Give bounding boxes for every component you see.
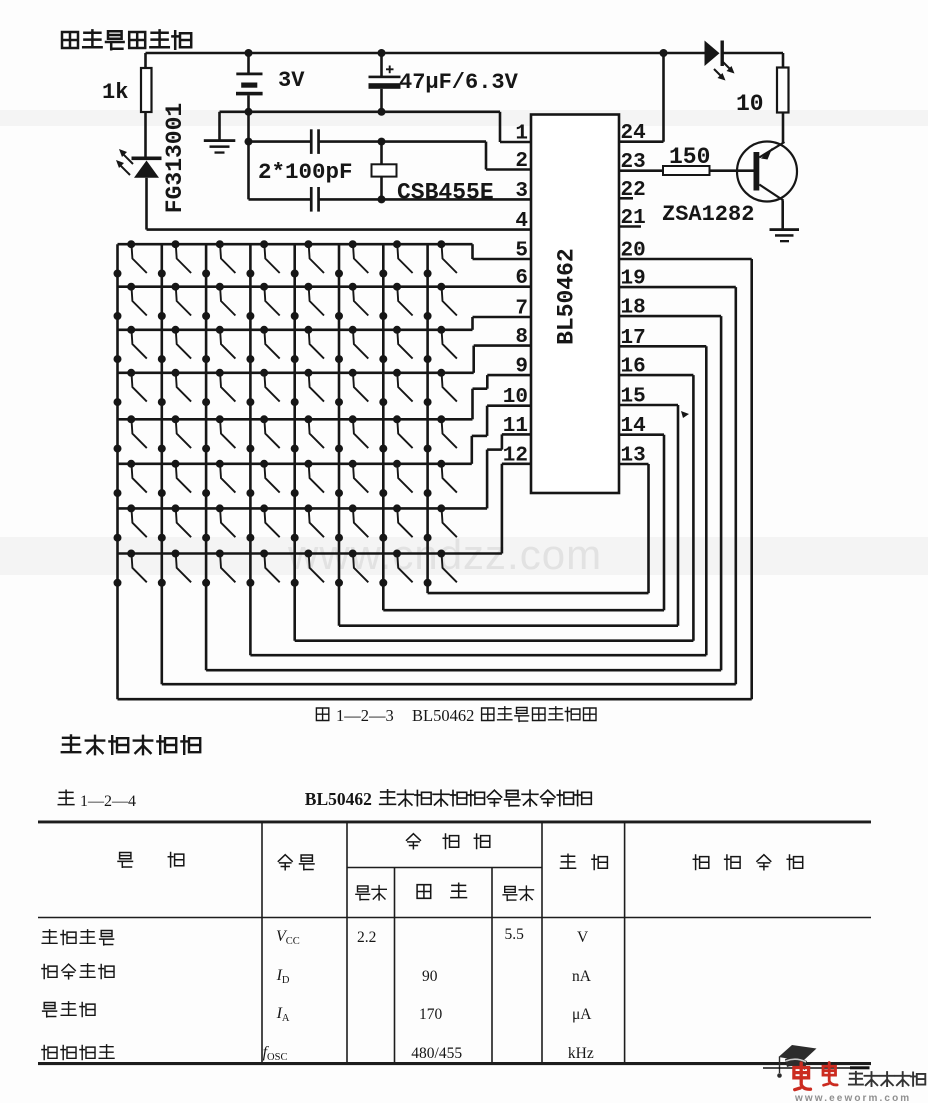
svg-text:150: 150	[669, 144, 710, 170]
svg-text:2.2: 2.2	[357, 929, 376, 946]
svg-text:480/455: 480/455	[411, 1045, 462, 1062]
svg-text:kHz: kHz	[568, 1045, 594, 1062]
svg-text:CSB455E: CSB455E	[397, 180, 494, 206]
svg-text:1—2—4: 1—2—4	[80, 793, 136, 810]
svg-text:nA: nA	[572, 968, 592, 985]
svg-text:2*100pF: 2*100pF	[258, 159, 353, 185]
svg-text:47μF/6.3V: 47μF/6.3V	[399, 70, 519, 95]
svg-text:170: 170	[419, 1006, 443, 1023]
svg-text:2: 2	[515, 150, 528, 173]
svg-text:BL50462: BL50462	[554, 248, 580, 345]
svg-text:μA: μA	[572, 1006, 592, 1023]
svg-text:www.eeworm.com: www.eeworm.com	[794, 1093, 911, 1103]
svg-text:FG313001: FG313001	[162, 103, 188, 213]
svg-text:1: 1	[515, 123, 528, 146]
svg-text:10: 10	[736, 91, 764, 117]
svg-text:V: V	[577, 929, 589, 946]
svg-text:90: 90	[422, 968, 438, 985]
svg-text:BL50462: BL50462	[412, 706, 474, 725]
svg-text:3: 3	[515, 180, 528, 203]
svg-text:1—2—3: 1—2—3	[336, 706, 394, 725]
svg-text:BL50462: BL50462	[305, 789, 372, 809]
svg-text:3V: 3V	[278, 68, 305, 93]
svg-text:5.5: 5.5	[505, 926, 525, 943]
svg-text:ZSA1282: ZSA1282	[662, 202, 754, 227]
svg-text:1k: 1k	[102, 80, 128, 105]
